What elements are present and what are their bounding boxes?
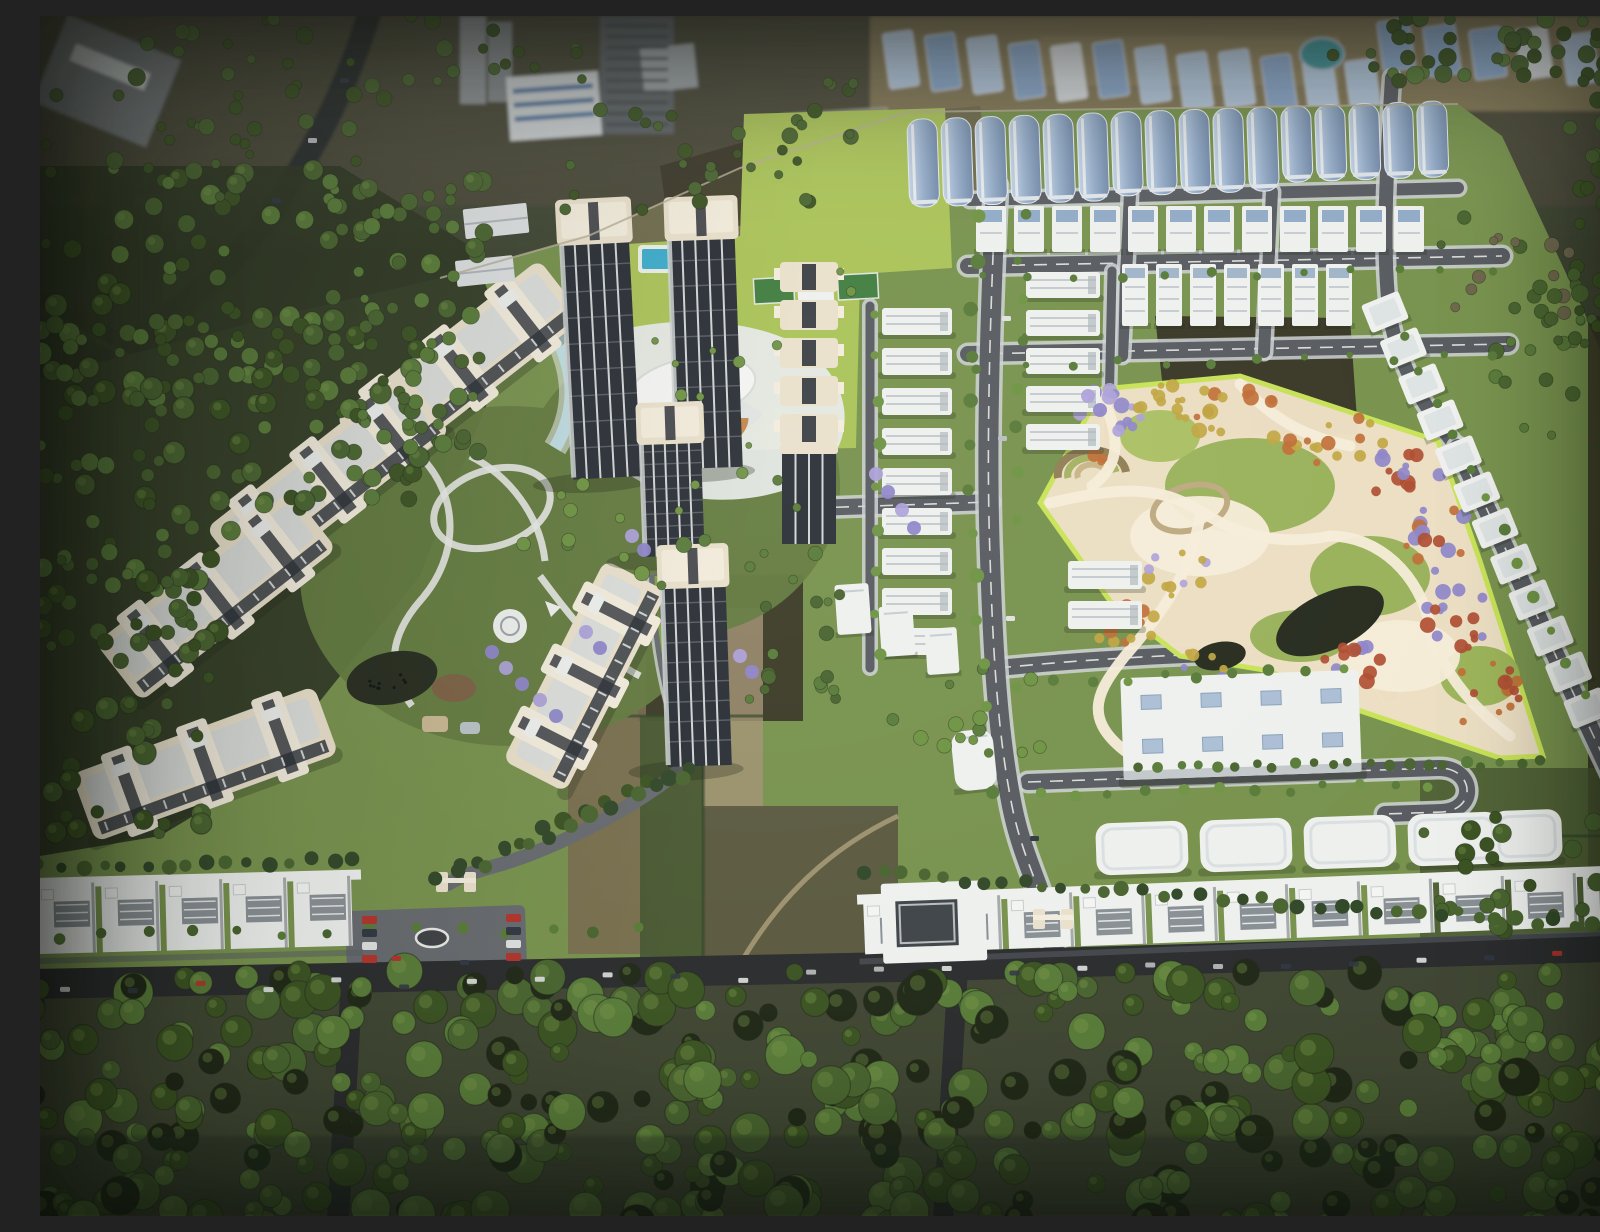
sun-glow — [40, 16, 1600, 1216]
light-overlay — [40, 16, 1600, 1216]
aerial-masterplan-render — [40, 16, 1600, 1216]
scene-canvas — [40, 16, 1600, 1216]
